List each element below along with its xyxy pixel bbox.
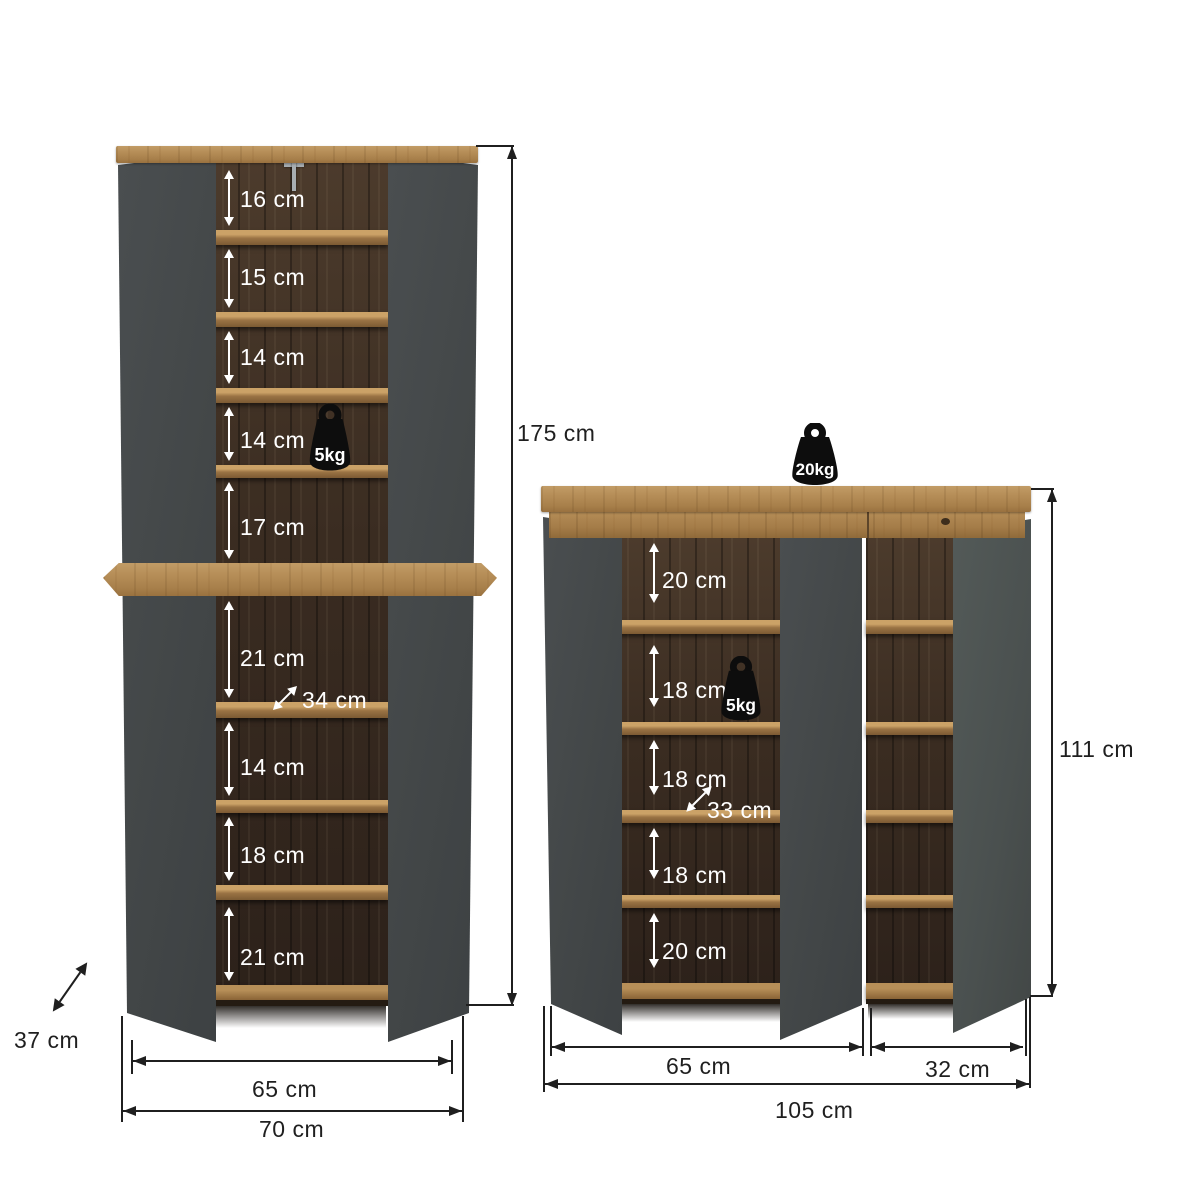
inner-width-label: 65 cm — [252, 1076, 317, 1103]
arrowhead-up — [507, 146, 517, 159]
section-arrow — [228, 179, 230, 217]
depth-arrow-diagonal — [59, 972, 81, 1003]
interior-depth-label: 33 cm — [707, 797, 772, 824]
shelf — [213, 885, 388, 900]
bottom-board — [213, 985, 388, 1000]
dim-right-width-line — [872, 1046, 1023, 1048]
section-arrow — [653, 654, 655, 698]
section-height-label: 18 cm — [662, 862, 727, 889]
weight-5kg-icon: 5kg — [714, 656, 768, 724]
section-arrow — [228, 731, 230, 787]
shelf — [213, 465, 388, 478]
dim-left-width-line — [552, 1046, 862, 1048]
apron-seam — [867, 511, 869, 538]
arrowhead-right — [1016, 1079, 1029, 1089]
height-label: 111 cm — [1059, 736, 1134, 763]
dim-height-line — [1051, 489, 1053, 997]
weight-5kg-icon: 5kg — [302, 404, 358, 474]
height-label: 175 cm — [517, 420, 595, 447]
ext-line — [1025, 999, 1027, 1056]
middle-door-open — [780, 517, 862, 1040]
left-width-label: 65 cm — [666, 1053, 731, 1080]
section-arrow — [228, 826, 230, 872]
section-arrow — [228, 258, 230, 299]
weight-20kg-icon: 20kg — [784, 423, 846, 487]
ext-line — [1029, 997, 1031, 1088]
section-arrow — [228, 610, 230, 689]
right-cabinet-right-interior — [866, 537, 955, 1000]
dim-inner-width-line — [133, 1060, 451, 1062]
furniture-dimension-diagram: 16 cm 15 cm 14 cm 14 cm 17 cm 21 cm 14 c… — [0, 0, 1200, 1195]
dim-tick — [1030, 995, 1053, 997]
right-door-open — [388, 153, 478, 1042]
section-arrow — [653, 837, 655, 870]
section-height-label: 14 cm — [240, 754, 305, 781]
section-height-label: 21 cm — [240, 645, 305, 672]
shelf — [866, 810, 955, 823]
shelf — [617, 895, 785, 908]
arrowhead-left — [545, 1079, 558, 1089]
ext-line — [462, 1016, 464, 1122]
apron-panel — [549, 511, 1025, 538]
arrowhead-right — [849, 1042, 862, 1052]
section-arrow — [653, 552, 655, 594]
arrowhead-left — [133, 1056, 146, 1066]
dim-outer-width-line — [123, 1110, 462, 1112]
section-arrow — [228, 416, 230, 452]
left-door-open — [118, 153, 216, 1042]
section-height-label: 15 cm — [240, 264, 305, 291]
shelf — [617, 620, 785, 634]
shelf — [866, 722, 955, 735]
section-arrow — [228, 491, 230, 550]
weight-20kg-label: 20kg — [796, 460, 835, 479]
arrowhead-left — [552, 1042, 565, 1052]
section-height-label: 20 cm — [662, 567, 727, 594]
floor-shadow — [868, 1004, 953, 1019]
floor-shadow — [620, 1004, 782, 1022]
interior-depth-label: 34 cm — [302, 687, 367, 714]
middle-divider — [103, 563, 497, 596]
depth-label: 37 cm — [14, 1027, 79, 1054]
section-arrow — [653, 749, 655, 786]
arrowhead-right — [438, 1056, 451, 1066]
shelf — [213, 312, 388, 327]
dim-total-width-line — [545, 1083, 1029, 1085]
dim-height-line — [511, 146, 513, 1006]
shelf — [213, 230, 388, 245]
section-height-label: 14 cm — [240, 344, 305, 371]
section-height-label: 14 cm — [240, 427, 305, 454]
section-arrow — [653, 922, 655, 959]
bottom-board — [866, 983, 955, 999]
outer-width-label: 70 cm — [259, 1116, 324, 1143]
shelf — [866, 895, 955, 908]
bottom-board — [617, 983, 785, 999]
total-width-label: 105 cm — [775, 1097, 853, 1124]
arrowhead-up — [1047, 489, 1057, 502]
weight-5kg-label: 5kg — [314, 445, 345, 465]
floor-shadow — [216, 1006, 386, 1028]
right-width-label: 32 cm — [925, 1056, 990, 1083]
left-door-open — [543, 517, 622, 1035]
arrowhead-right — [449, 1106, 462, 1116]
section-height-label: 16 cm — [240, 186, 305, 213]
wood-knot — [941, 518, 950, 525]
section-arrow — [228, 916, 230, 972]
dim-tick — [466, 1004, 514, 1006]
arrowhead-left — [872, 1042, 885, 1052]
ext-line — [862, 1008, 864, 1056]
shelf — [213, 388, 388, 403]
section-height-label: 18 cm — [662, 766, 727, 793]
section-arrow — [228, 340, 230, 375]
section-height-label: 17 cm — [240, 514, 305, 541]
ext-line — [451, 1040, 453, 1074]
shelf — [866, 620, 955, 634]
top-board — [116, 146, 478, 163]
arrowhead-right — [1010, 1042, 1023, 1052]
section-height-label: 20 cm — [662, 938, 727, 965]
top-board — [541, 486, 1031, 512]
shelf — [213, 800, 388, 813]
section-height-label: 21 cm — [240, 944, 305, 971]
right-door-open — [953, 519, 1031, 1033]
arrowhead-left — [123, 1106, 136, 1116]
section-height-label: 18 cm — [240, 842, 305, 869]
weight-5kg-label: 5kg — [726, 695, 756, 715]
